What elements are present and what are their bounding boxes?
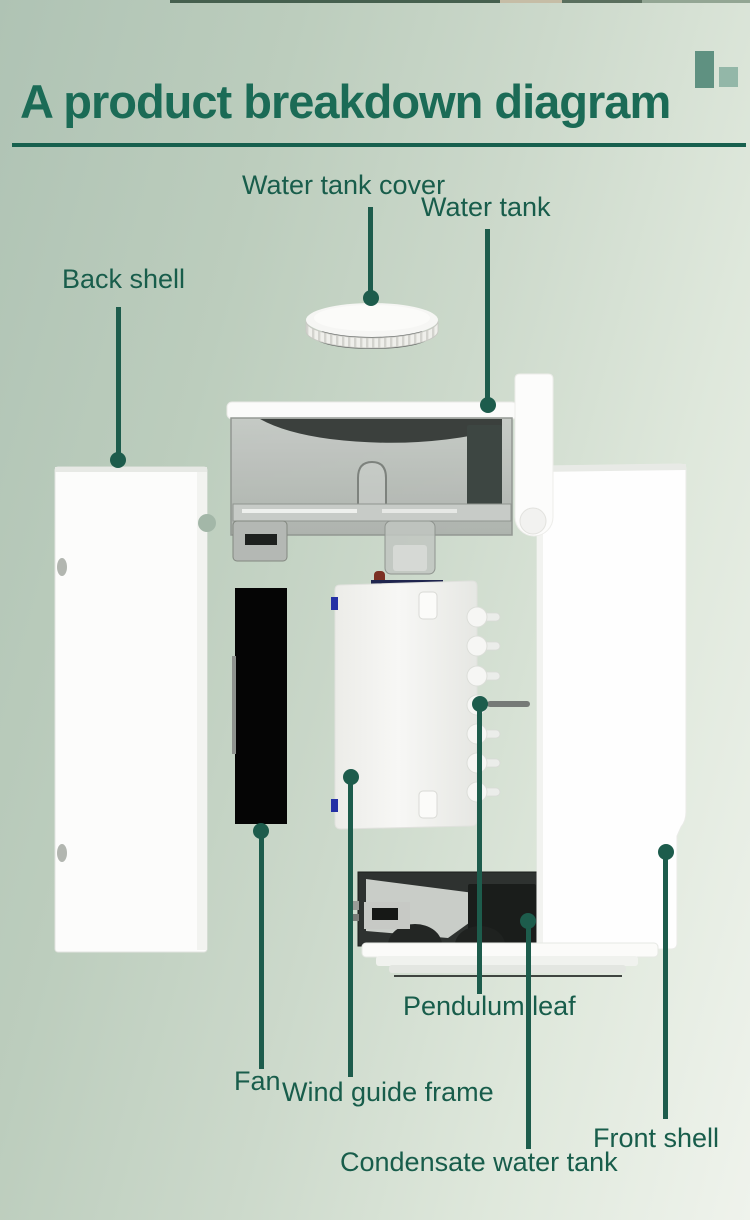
leader-line-water-tank — [485, 229, 490, 401]
wind-guide-frame-part — [331, 571, 530, 829]
leader-line-wind-guide-frame — [348, 781, 353, 1077]
label-back-shell: Back shell — [62, 264, 185, 295]
leader-line-back-shell — [116, 307, 121, 457]
product-breakdown-page: A product breakdown diagram — [0, 0, 750, 1220]
leader-line-pendulum-leaf — [477, 707, 482, 994]
label-water-tank-cover: Water tank cover — [242, 170, 445, 201]
leader-line-condensate-water-tank — [526, 925, 531, 1149]
label-wind-guide-frame: Wind guide frame — [282, 1077, 494, 1108]
pendulum-leaf-part — [487, 701, 530, 707]
leader-dot-wind-guide-frame — [343, 769, 359, 785]
leader-line-water-tank-cover — [368, 207, 373, 295]
back-shell-notch — [198, 514, 216, 532]
back-shell-part — [55, 467, 216, 952]
base-trays-part — [362, 943, 658, 977]
leader-line-front-shell — [663, 856, 668, 1119]
leader-dot-fan — [253, 823, 269, 839]
label-fan: Fan — [234, 1066, 281, 1097]
leader-dot-front-shell — [658, 844, 674, 860]
water-tank-cover-part — [306, 303, 438, 349]
label-condensate-water-tank: Condensate water tank — [340, 1147, 618, 1178]
leader-line-fan — [259, 833, 264, 1069]
leader-dot-back-shell — [110, 452, 126, 468]
label-pendulum-leaf: Pendulum leaf — [403, 991, 576, 1022]
condensate-water-tank-part — [349, 872, 540, 946]
label-water-tank: Water tank — [421, 192, 551, 223]
leader-dot-pendulum-leaf — [472, 696, 488, 712]
leader-dot-water-tank — [480, 397, 496, 413]
water-tank-part — [227, 402, 517, 574]
leader-dot-condensate-water-tank — [520, 913, 536, 929]
leader-dot-water-tank-cover — [363, 290, 379, 306]
water-tank-handle-part — [515, 374, 553, 536]
fan-part — [232, 588, 287, 824]
